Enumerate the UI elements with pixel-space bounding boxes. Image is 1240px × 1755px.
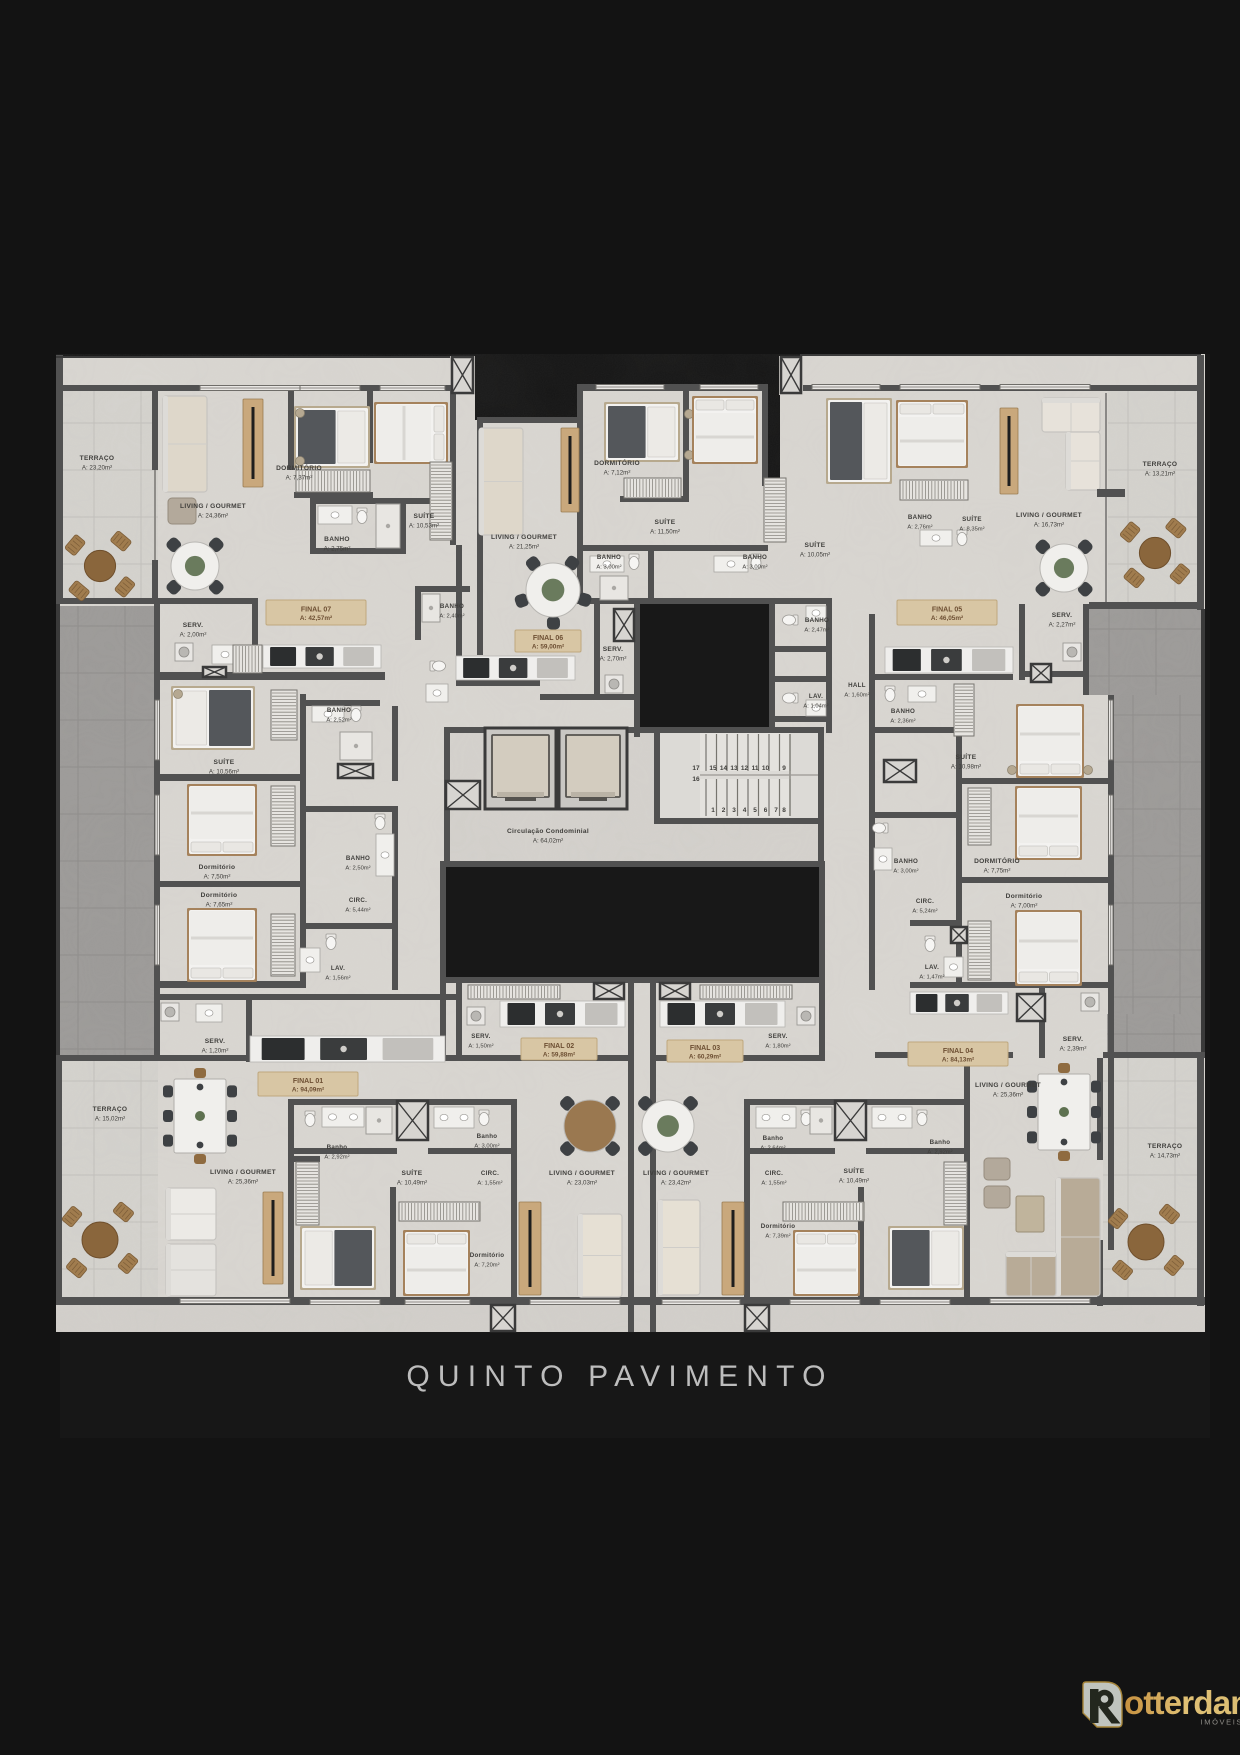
svg-text:LAV.: LAV.	[331, 965, 345, 972]
svg-text:9: 9	[782, 765, 786, 772]
svg-text:5: 5	[753, 807, 757, 814]
svg-text:Dormitório: Dormitório	[199, 864, 236, 871]
svg-text:Banho: Banho	[763, 1135, 784, 1142]
svg-text:A: 21,25m²: A: 21,25m²	[509, 544, 539, 551]
svg-text:LIVING / GOURMET: LIVING / GOURMET	[975, 1082, 1041, 1089]
svg-text:IMÓVEIS: IMÓVEIS	[1201, 1718, 1240, 1727]
svg-text:A: 23,03m²: A: 23,03m²	[567, 1180, 597, 1187]
svg-text:A: 2,92m²: A: 2,92m²	[324, 1155, 349, 1161]
svg-text:15: 15	[709, 765, 717, 772]
svg-text:A: 7,39m²: A: 7,39m²	[765, 1234, 790, 1240]
svg-text:A: 7,00m²: A: 7,00m²	[1011, 903, 1038, 910]
svg-text:7: 7	[774, 807, 778, 814]
svg-text:A: 7,12m²: A: 7,12m²	[604, 470, 631, 477]
svg-text:LIVING / GOURMET: LIVING / GOURMET	[491, 534, 557, 541]
svg-text:Dormitório: Dormitório	[761, 1223, 796, 1230]
svg-text:LIVING / GOURMET: LIVING / GOURMET	[210, 1169, 276, 1176]
svg-text:A: 94,09m²: A: 94,09m²	[292, 1087, 324, 1094]
svg-text:CIRC.: CIRC.	[349, 897, 367, 904]
svg-text:BANHO: BANHO	[324, 536, 350, 543]
svg-text:A: 25,36m²: A: 25,36m²	[228, 1179, 258, 1186]
svg-text:A: 15,02m²: A: 15,02m²	[95, 1116, 125, 1123]
svg-text:A: 5,44m²: A: 5,44m²	[345, 908, 370, 914]
svg-text:A: 8,35m²: A: 8,35m²	[959, 527, 984, 533]
svg-text:LAV.: LAV.	[925, 964, 939, 971]
svg-text:A: 84,13m²: A: 84,13m²	[942, 1057, 974, 1064]
svg-text:Dormitório: Dormitório	[470, 1252, 505, 1259]
svg-text:10: 10	[762, 765, 770, 772]
svg-text:A: 2,40m²: A: 2,40m²	[439, 614, 464, 620]
svg-text:12: 12	[741, 765, 749, 772]
svg-text:DORMITÓRIO: DORMITÓRIO	[594, 458, 640, 467]
svg-text:SERV.: SERV.	[1052, 612, 1073, 619]
svg-text:A: 13,21m²: A: 13,21m²	[1145, 471, 1175, 478]
svg-text:Dormitório: Dormitório	[1006, 893, 1043, 900]
svg-text:FINAL 02: FINAL 02	[544, 1043, 574, 1050]
svg-text:SUÍTE: SUÍTE	[844, 1166, 865, 1175]
svg-text:BANHO: BANHO	[597, 554, 621, 561]
svg-text:LIVING / GOURMET: LIVING / GOURMET	[180, 503, 246, 510]
svg-text:A: 14,73m²: A: 14,73m²	[1150, 1153, 1180, 1160]
svg-text:BANHO: BANHO	[805, 617, 829, 624]
svg-text:CIRC.: CIRC.	[916, 898, 934, 905]
svg-text:HALL: HALL	[848, 682, 866, 689]
svg-text:A: 64,02m²: A: 64,02m²	[533, 838, 563, 845]
svg-text:A: 59,88m²: A: 59,88m²	[543, 1052, 575, 1059]
svg-text:A: 23,20m²: A: 23,20m²	[82, 465, 112, 472]
svg-text:Banho: Banho	[327, 1144, 348, 1151]
svg-text:A: 46,05m²: A: 46,05m²	[931, 615, 963, 622]
svg-text:3: 3	[732, 807, 736, 814]
svg-text:A: 1,20m²: A: 1,20m²	[202, 1048, 229, 1055]
svg-text:A: 11,50m²: A: 11,50m²	[650, 529, 680, 536]
svg-text:8: 8	[782, 807, 786, 814]
svg-text:A: 2,75m²: A: 2,75m²	[324, 546, 351, 553]
svg-text:A: 7,50m²: A: 7,50m²	[204, 874, 231, 881]
svg-text:SUÍTE: SUÍTE	[655, 517, 676, 526]
svg-text:4: 4	[743, 807, 747, 814]
svg-text:A: 10,05m²: A: 10,05m²	[800, 552, 830, 559]
svg-text:Dormitório: Dormitório	[201, 892, 238, 899]
svg-text:A: 5,24m²: A: 5,24m²	[912, 909, 937, 915]
svg-text:A: 10,49m²: A: 10,49m²	[839, 1178, 869, 1185]
svg-text:SERV.: SERV.	[471, 1033, 490, 1040]
svg-text:otterdam: otterdam	[1124, 1684, 1240, 1721]
svg-text:A: 3,00m²: A: 3,00m²	[596, 565, 621, 571]
svg-text:A: 7,37m²: A: 7,37m²	[286, 475, 313, 482]
svg-text:QUINTO PAVIMENTO: QUINTO PAVIMENTO	[406, 1360, 833, 1393]
svg-text:A: 1,55m²: A: 1,55m²	[761, 1181, 786, 1187]
svg-text:TERRAÇO: TERRAÇO	[1148, 1143, 1183, 1150]
svg-text:FINAL 06: FINAL 06	[533, 635, 563, 642]
svg-text:SERV.: SERV.	[205, 1038, 226, 1045]
svg-text:SUÍTE: SUÍTE	[402, 1168, 423, 1177]
svg-text:A: 7,20m²: A: 7,20m²	[474, 1263, 499, 1269]
svg-text:A: 25,36m²: A: 25,36m²	[993, 1092, 1023, 1099]
svg-text:A: 1,04m²: A: 1,04m²	[803, 704, 828, 710]
svg-text:A: 1,55m²: A: 1,55m²	[477, 1181, 502, 1187]
svg-text:11: 11	[752, 765, 759, 772]
svg-text:A: 2,36m²: A: 2,36m²	[890, 719, 915, 725]
svg-text:16: 16	[692, 776, 700, 783]
svg-text:A: 1,80m²: A: 1,80m²	[765, 1044, 790, 1050]
svg-text:BANHO: BANHO	[346, 855, 370, 862]
svg-text:1: 1	[711, 807, 715, 814]
svg-text:SUÍTE: SUÍTE	[805, 540, 826, 549]
svg-text:SERV.: SERV.	[768, 1033, 787, 1040]
svg-text:A: 60,29m²: A: 60,29m²	[689, 1054, 721, 1061]
svg-text:A: 2,39m²: A: 2,39m²	[1060, 1046, 1087, 1053]
svg-text:FINAL 01: FINAL 01	[293, 1078, 323, 1085]
svg-text:SERV.: SERV.	[603, 646, 624, 653]
svg-text:SUÍTE: SUÍTE	[962, 515, 982, 523]
svg-text:A: 24,36m²: A: 24,36m²	[198, 513, 228, 520]
svg-text:A: 2,52m²: A: 2,52m²	[326, 718, 351, 724]
svg-text:TERRAÇO: TERRAÇO	[80, 455, 115, 462]
svg-text:FINAL 07: FINAL 07	[301, 607, 331, 614]
svg-text:A: 2,27m²: A: 2,27m²	[1049, 622, 1076, 629]
svg-text:A: 1,50m²: A: 1,50m²	[468, 1044, 493, 1050]
svg-text:A: 2,50m²: A: 2,50m²	[345, 866, 370, 872]
svg-text:TERRAÇO: TERRAÇO	[93, 1106, 128, 1113]
svg-text:FINAL 03: FINAL 03	[690, 1045, 720, 1052]
svg-text:6: 6	[764, 807, 768, 814]
svg-text:A: 2,76m²: A: 2,76m²	[907, 525, 932, 531]
svg-text:FINAL 05: FINAL 05	[932, 607, 962, 614]
svg-text:A: 2,70m²: A: 2,70m²	[600, 656, 627, 663]
svg-text:A: 10,49m²: A: 10,49m²	[397, 1180, 427, 1187]
svg-text:BANHO: BANHO	[743, 554, 767, 561]
svg-text:A: 2,64m²: A: 2,64m²	[760, 1146, 785, 1152]
svg-text:SUÍTE: SUÍTE	[414, 511, 435, 520]
svg-text:A: 16,73m²: A: 16,73m²	[1034, 522, 1064, 529]
svg-text:A: 1,56m²: A: 1,56m²	[325, 976, 350, 982]
svg-text:DORMITÓRIO: DORMITÓRIO	[974, 856, 1020, 865]
svg-text:Banho: Banho	[477, 1133, 498, 1140]
svg-text:BANHO: BANHO	[327, 707, 351, 714]
svg-text:A: 3,00m²: A: 3,00m²	[742, 565, 767, 571]
svg-text:BANHO: BANHO	[891, 708, 915, 715]
svg-text:Banho: Banho	[930, 1139, 951, 1146]
svg-text:A: 10,53m²: A: 10,53m²	[409, 523, 439, 530]
svg-text:CIRC.: CIRC.	[765, 1170, 783, 1177]
svg-text:13: 13	[730, 765, 738, 772]
svg-text:TERRAÇO: TERRAÇO	[1143, 461, 1178, 468]
svg-text:SERV.: SERV.	[183, 622, 204, 629]
svg-text:LIVING / GOURMET: LIVING / GOURMET	[549, 1170, 615, 1177]
svg-text:17: 17	[692, 765, 700, 772]
svg-text:FINAL 04: FINAL 04	[943, 1048, 973, 1055]
svg-text:LAV.: LAV.	[809, 693, 823, 700]
svg-text:A: 42,57m²: A: 42,57m²	[300, 615, 332, 622]
svg-text:DORMITÓRIO: DORMITÓRIO	[276, 463, 322, 472]
svg-text:A: 2,92m²: A: 2,92m²	[927, 1150, 952, 1156]
svg-text:SUÍTE: SUÍTE	[956, 752, 977, 761]
svg-text:A: 10,56m²: A: 10,56m²	[209, 769, 239, 776]
svg-text:CIRC.: CIRC.	[481, 1170, 499, 1177]
svg-text:A: 1,60m²: A: 1,60m²	[844, 693, 869, 699]
svg-text:A: 3,00m²: A: 3,00m²	[893, 869, 918, 875]
svg-text:A: 2,47m²: A: 2,47m²	[804, 628, 829, 634]
svg-text:LIVING / GOURMET: LIVING / GOURMET	[643, 1170, 709, 1177]
svg-text:A: 7,65m²: A: 7,65m²	[206, 902, 233, 909]
svg-text:2: 2	[722, 807, 726, 814]
svg-text:BANHO: BANHO	[908, 514, 932, 521]
svg-text:A: 59,00m²: A: 59,00m²	[532, 644, 564, 651]
svg-text:A: 3,00m²: A: 3,00m²	[474, 1144, 499, 1150]
svg-text:SUÍTE: SUÍTE	[214, 757, 235, 766]
svg-text:A: 10,98m²: A: 10,98m²	[951, 764, 981, 771]
svg-text:A: 23,42m²: A: 23,42m²	[661, 1180, 691, 1187]
svg-text:A: 1,47m²: A: 1,47m²	[919, 975, 944, 981]
svg-text:A: 7,75m²: A: 7,75m²	[984, 868, 1011, 875]
svg-text:A: 2,00m²: A: 2,00m²	[180, 632, 207, 639]
svg-text:SERV.: SERV.	[1063, 1036, 1084, 1043]
svg-text:BANHO: BANHO	[440, 603, 464, 610]
svg-text:LIVING / GOURMET: LIVING / GOURMET	[1016, 512, 1082, 519]
svg-text:Circulação Condominial: Circulação Condominial	[507, 828, 589, 835]
svg-text:14: 14	[720, 765, 728, 772]
svg-text:BANHO: BANHO	[894, 858, 918, 865]
